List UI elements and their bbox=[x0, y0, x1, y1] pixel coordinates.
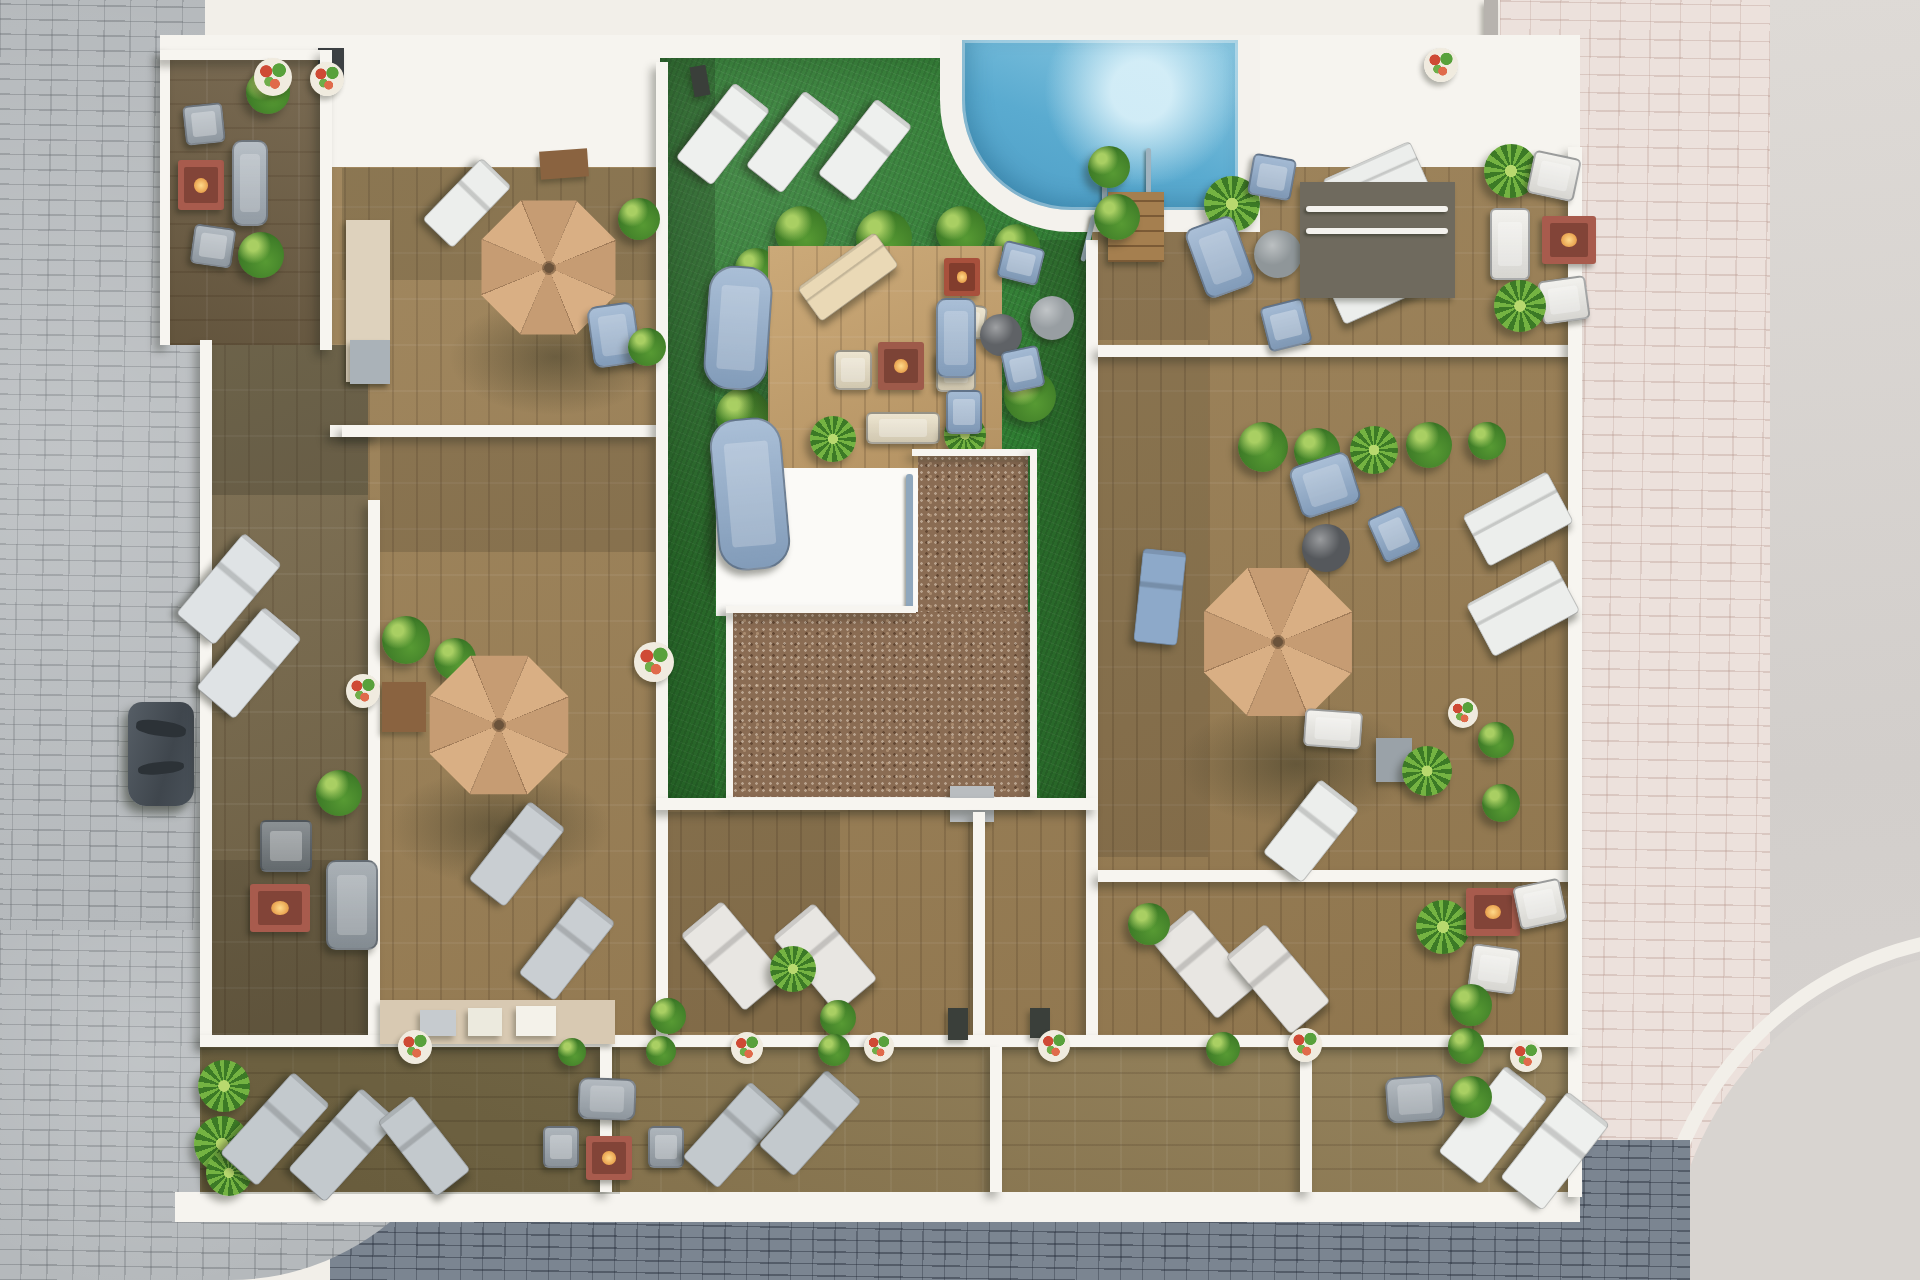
parapet-wall bbox=[656, 798, 1098, 810]
lounge-armchair bbox=[182, 102, 226, 146]
rooftop-aerial-render bbox=[0, 0, 1920, 1280]
flower-pot bbox=[1288, 1028, 1322, 1062]
boxwood-ball bbox=[1478, 722, 1514, 758]
wood-table bbox=[539, 148, 589, 179]
shrub bbox=[382, 616, 430, 664]
fire-table bbox=[178, 160, 224, 210]
parapet-wall bbox=[656, 62, 668, 1038]
boxwood-ball bbox=[818, 1034, 850, 1066]
stair-rail bbox=[906, 474, 913, 612]
boxwood-ball bbox=[558, 1038, 586, 1066]
balcony-armchair bbox=[648, 1126, 684, 1168]
parapet-wall bbox=[342, 425, 656, 437]
parapet-wall bbox=[1098, 870, 1580, 882]
shrub bbox=[1406, 422, 1452, 468]
palm-plant bbox=[1494, 280, 1546, 332]
shrub bbox=[1482, 784, 1520, 822]
bottom-edge-band bbox=[175, 1192, 1580, 1222]
shrub bbox=[1450, 1076, 1492, 1118]
recessed-balcony bbox=[1300, 182, 1455, 298]
flower-pot bbox=[346, 674, 380, 708]
flower-pot bbox=[1424, 48, 1458, 82]
shrub bbox=[1094, 194, 1140, 240]
palm-plant bbox=[1416, 900, 1470, 954]
boxwood-ball bbox=[646, 1036, 676, 1066]
shrub bbox=[1468, 422, 1506, 460]
gravel-parapet bbox=[726, 606, 733, 804]
gravel-roof bbox=[918, 455, 1028, 615]
patio-bench bbox=[1490, 208, 1530, 280]
boxwood-ball bbox=[1448, 1028, 1484, 1064]
flower-pot bbox=[1510, 1040, 1542, 1072]
curved-sofa bbox=[708, 415, 793, 573]
fire-table bbox=[1542, 216, 1596, 264]
garden-armchair bbox=[946, 390, 982, 434]
fire-table bbox=[250, 884, 310, 932]
wall-shadow bbox=[200, 345, 368, 495]
loveseat bbox=[232, 140, 268, 226]
gravel-parapet bbox=[912, 449, 1036, 456]
gravel-roof bbox=[732, 612, 1030, 798]
flower-pot bbox=[731, 1032, 763, 1064]
shrub bbox=[628, 328, 666, 366]
balcony-railing bbox=[1306, 228, 1448, 234]
deck-bench bbox=[866, 412, 940, 444]
ac-unit bbox=[350, 340, 390, 384]
ac-unit bbox=[420, 1010, 456, 1036]
wall-shadow bbox=[380, 437, 655, 552]
round-table bbox=[1030, 296, 1074, 340]
flower-pot bbox=[864, 1032, 894, 1062]
boxwood-ball bbox=[1206, 1032, 1240, 1066]
lounge-armchair bbox=[189, 223, 236, 268]
loveseat bbox=[326, 860, 378, 950]
gravel-parapet bbox=[726, 606, 916, 613]
shrub bbox=[1238, 422, 1288, 472]
round-table bbox=[1254, 230, 1302, 278]
flower-pot bbox=[634, 642, 674, 682]
shrub bbox=[618, 198, 660, 240]
boxwood-ball bbox=[650, 998, 686, 1034]
palm-plant bbox=[198, 1060, 250, 1112]
garden-armchair bbox=[1247, 152, 1298, 201]
curved-sofa bbox=[702, 264, 774, 392]
gravel-parapet bbox=[1030, 449, 1037, 804]
shrub bbox=[1450, 984, 1492, 1026]
fire-table bbox=[878, 342, 924, 390]
wood-table bbox=[382, 682, 426, 732]
ac-unit bbox=[468, 1008, 502, 1036]
parapet-wall bbox=[160, 50, 170, 345]
lounge-armchair bbox=[260, 820, 312, 872]
deck-armchair bbox=[834, 350, 872, 390]
garden-sofa bbox=[936, 298, 976, 378]
parapet-wall bbox=[160, 50, 330, 60]
balcony-sofa bbox=[577, 1077, 636, 1121]
flower-pot bbox=[310, 62, 344, 96]
flower-pot bbox=[254, 58, 292, 96]
roof-vent bbox=[948, 1008, 968, 1040]
boxwood-ball bbox=[820, 1000, 856, 1036]
palm-plant bbox=[1350, 426, 1398, 474]
parapet-wall bbox=[368, 500, 380, 1040]
palm-plant bbox=[810, 416, 856, 462]
flower-pot bbox=[398, 1030, 432, 1064]
shrub bbox=[1088, 146, 1130, 188]
planter-box bbox=[944, 258, 980, 296]
fire-table bbox=[1466, 888, 1520, 936]
parapet-wall bbox=[973, 812, 985, 1035]
building bbox=[0, 0, 1920, 1280]
fire-bowl-table bbox=[1302, 524, 1350, 572]
shrub bbox=[1128, 903, 1170, 945]
flower-pot bbox=[1448, 698, 1478, 728]
shrub bbox=[238, 232, 284, 278]
fern-plant bbox=[770, 946, 816, 992]
balcony-sofa bbox=[1384, 1074, 1445, 1124]
balcony-divider bbox=[1300, 1047, 1312, 1192]
balcony-railing bbox=[1306, 206, 1448, 212]
balcony-divider bbox=[990, 1047, 1002, 1192]
fire-table bbox=[586, 1136, 632, 1180]
patio-bench bbox=[1303, 708, 1364, 750]
palm-plant bbox=[1402, 746, 1452, 796]
boxwood-ball bbox=[316, 770, 362, 816]
parapet-wall bbox=[1086, 240, 1098, 1038]
parapet-wall bbox=[1098, 345, 1580, 357]
balcony-armchair bbox=[543, 1126, 579, 1168]
hatch-panel bbox=[516, 1006, 556, 1036]
flower-pot bbox=[1038, 1030, 1070, 1062]
